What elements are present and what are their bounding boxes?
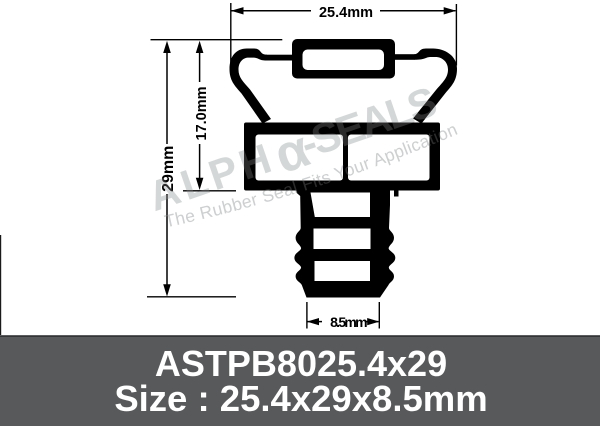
svg-text:25.4mm: 25.4mm (319, 5, 373, 21)
svg-text:8.5mm: 8.5mm (330, 314, 367, 330)
svg-text:Size : 25.4x29x8.5mm: Size : 25.4x29x8.5mm (114, 378, 487, 419)
svg-text:17.0mm: 17.0mm (194, 86, 210, 140)
